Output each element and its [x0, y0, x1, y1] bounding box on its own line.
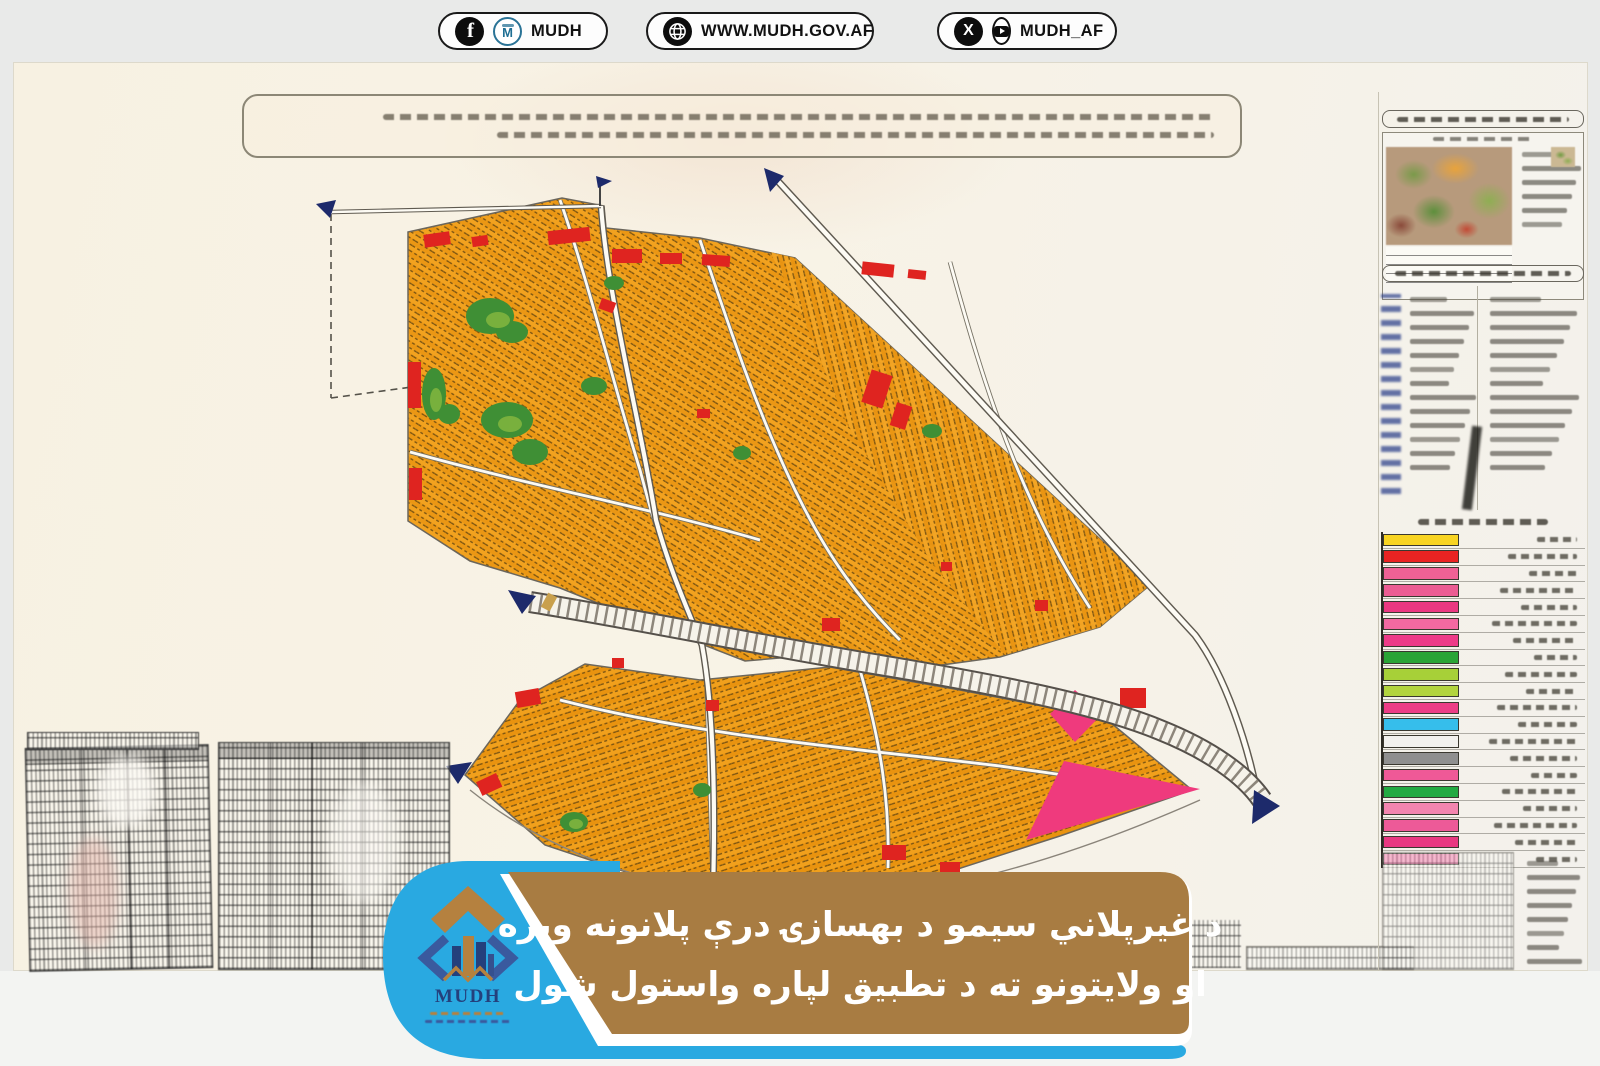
blurred-text-line: [1410, 437, 1460, 442]
legend-label: [1515, 840, 1577, 845]
legend-row: [1383, 750, 1585, 767]
blurred-text-line: [1410, 297, 1447, 302]
legend-swatch: [1383, 534, 1459, 547]
legend-row: [1383, 818, 1585, 835]
scan-table-left-2: [27, 732, 199, 750]
legend-label: [1489, 739, 1577, 744]
legend-row: [1383, 717, 1585, 734]
legend-swatch: [1383, 618, 1459, 631]
legend-label: [1510, 756, 1577, 761]
blurred-text-line: [1527, 917, 1568, 922]
legend-swatch: [1383, 769, 1459, 782]
blurred-text-line: [1490, 423, 1565, 428]
banner-line-1: د غیرپلاني سیمو د بهسازۍ درې پلانونه ویز…: [498, 899, 1223, 951]
stamp-scribbles: [1381, 294, 1401, 494]
facebook-icon: f: [455, 17, 484, 46]
panel-text-col-right: [1483, 288, 1581, 479]
legend-row: [1383, 683, 1585, 700]
blurred-text-line: [1490, 353, 1557, 358]
website-url: WWW.MUDH.GOV.AF: [701, 22, 873, 41]
legend-label: [1494, 823, 1577, 828]
legend-row: [1383, 734, 1585, 751]
blurred-text-line: [1490, 381, 1543, 386]
legend-label: [1537, 537, 1577, 542]
legend-label: [1521, 605, 1577, 610]
blurred-text-line: [1522, 208, 1567, 213]
legend-label: [1534, 655, 1577, 660]
legend-row: [1383, 566, 1585, 583]
blurred-text-line: [1527, 889, 1576, 894]
blurred-text-line: [1410, 325, 1469, 330]
legend-label: [1502, 789, 1577, 794]
legend-row: [1383, 599, 1585, 616]
legend-swatch: [1383, 685, 1459, 698]
blurred-text-line: [1490, 297, 1541, 302]
legend-row: [1383, 700, 1585, 717]
blurred-text-line: [1522, 194, 1572, 199]
legend-label: [1518, 722, 1577, 727]
blurred-text-line: [1490, 451, 1552, 456]
blurred-text-line: [1410, 339, 1464, 344]
blurred-text-line: [1410, 367, 1454, 372]
blurred-text-line: [1410, 381, 1449, 386]
legend-swatch: [1383, 601, 1459, 614]
legend-label: [1523, 806, 1577, 811]
legend: [1381, 532, 1585, 868]
legend-row: [1383, 633, 1585, 650]
youtube-icon: [992, 17, 1011, 45]
legend-row: [1383, 532, 1585, 549]
blurred-text-line: [1522, 180, 1576, 185]
legend-swatch: [1383, 735, 1459, 748]
social-handle: MUDH_AF: [1020, 22, 1103, 41]
legend-label: [1500, 588, 1577, 593]
legend-row: [1383, 616, 1585, 633]
facebook-handle: MUDH: [531, 22, 582, 41]
legend-row: [1383, 666, 1585, 683]
panel-number-strip: [1382, 110, 1584, 128]
panel-text-col-left: [1403, 288, 1475, 479]
blurred-text-line: [1490, 339, 1564, 344]
blurred-text-line: [1490, 409, 1572, 414]
blurred-text-line: [1527, 959, 1582, 964]
blurred-text-line: [1410, 311, 1474, 316]
legend-row: [1383, 582, 1585, 599]
legend-row: [1383, 801, 1585, 818]
legend-swatch: [1383, 718, 1459, 731]
website-pill[interactable]: WWW.MUDH.GOV.AF: [646, 12, 874, 50]
inset-aerial-image: [1386, 147, 1512, 245]
legend-label: [1526, 689, 1577, 694]
legend-swatch: [1383, 802, 1459, 815]
blurred-text-line: [1490, 367, 1550, 372]
map-side-panel: [1378, 92, 1588, 971]
legend-label: [1497, 705, 1577, 710]
legend-title: [1382, 514, 1584, 530]
blurred-text-line: [1527, 931, 1564, 936]
legend-label: [1508, 554, 1577, 559]
blurred-text-line: [1410, 409, 1470, 414]
facebook-pill[interactable]: f M MUDH: [438, 12, 608, 50]
banner-line-2: او ولایتونو ته د تطبیق لپاره واستول شول: [513, 959, 1207, 1011]
legend-label: [1513, 638, 1577, 643]
blurred-text-line: [1410, 353, 1459, 358]
legend-row: [1383, 650, 1585, 667]
legend-swatch: [1383, 752, 1459, 765]
logo-subtext-line: [425, 1020, 511, 1023]
legend-label: [1492, 621, 1577, 626]
legend-row: [1383, 767, 1585, 784]
blurred-text-line: [1490, 437, 1559, 442]
panel-bottom-table: [1382, 852, 1584, 968]
legend-swatch: [1383, 702, 1459, 715]
legend-label: [1529, 571, 1577, 576]
blurred-text-line: [1522, 222, 1562, 227]
globe-icon: [663, 17, 692, 46]
legend-row: [1383, 834, 1585, 851]
legend-swatch: [1383, 836, 1459, 849]
panel-subtitle-strip: [1382, 265, 1584, 282]
legend-row: [1383, 549, 1585, 566]
blurred-text-line: [1410, 395, 1476, 400]
blurred-text-line: [1527, 875, 1580, 880]
blurred-text-line: [1527, 861, 1558, 866]
map-title-box: [242, 94, 1242, 158]
banner-headline: د غیرپلاني سیمو د بهسازۍ درې پلانونه ویز…: [560, 884, 1160, 1026]
mudh-wordmark: MUDH: [404, 986, 532, 1008]
legend-label: [1531, 773, 1577, 778]
blurred-text-line: [1490, 465, 1545, 470]
blurred-text-line: [1527, 945, 1559, 950]
blurred-text-line: [1490, 311, 1577, 316]
blurred-text-line: [1527, 903, 1572, 908]
blurred-text-line: [1410, 451, 1455, 456]
x-icon: X: [954, 17, 983, 46]
legend-label: [1505, 672, 1577, 677]
legend-swatch: [1383, 584, 1459, 597]
blurred-text-line: [1410, 423, 1465, 428]
legend-swatch: [1383, 567, 1459, 580]
inset-thumb: [1551, 147, 1575, 167]
poster: f M MUDH WWW.MUDH.GOV.AF X MUDH_AF: [0, 0, 1600, 1066]
legend-swatch: [1383, 634, 1459, 647]
legend-rows: [1383, 532, 1585, 868]
panel-bottom-labels: [1520, 852, 1580, 973]
legend-row: [1383, 784, 1585, 801]
blurred-text-line: [1490, 325, 1570, 330]
legend-swatch: [1383, 550, 1459, 563]
scan-table-left: [25, 744, 214, 972]
scan-table-center: [218, 742, 450, 970]
map-title-blurred-line: [383, 114, 1214, 120]
legend-swatch: [1383, 651, 1459, 664]
blurred-text-line: [1490, 395, 1579, 400]
mudh-emblem-icon: M: [493, 17, 522, 46]
social-pill[interactable]: X MUDH_AF: [937, 12, 1117, 50]
legend-swatch: [1383, 819, 1459, 832]
logo-subtext-line: [430, 1012, 506, 1015]
legend-swatch: [1383, 786, 1459, 799]
blurred-text-line: [1410, 465, 1450, 470]
panel-text-columns: [1381, 286, 1585, 510]
map-title-blurred-line: [497, 132, 1214, 138]
legend-swatch: [1383, 668, 1459, 681]
